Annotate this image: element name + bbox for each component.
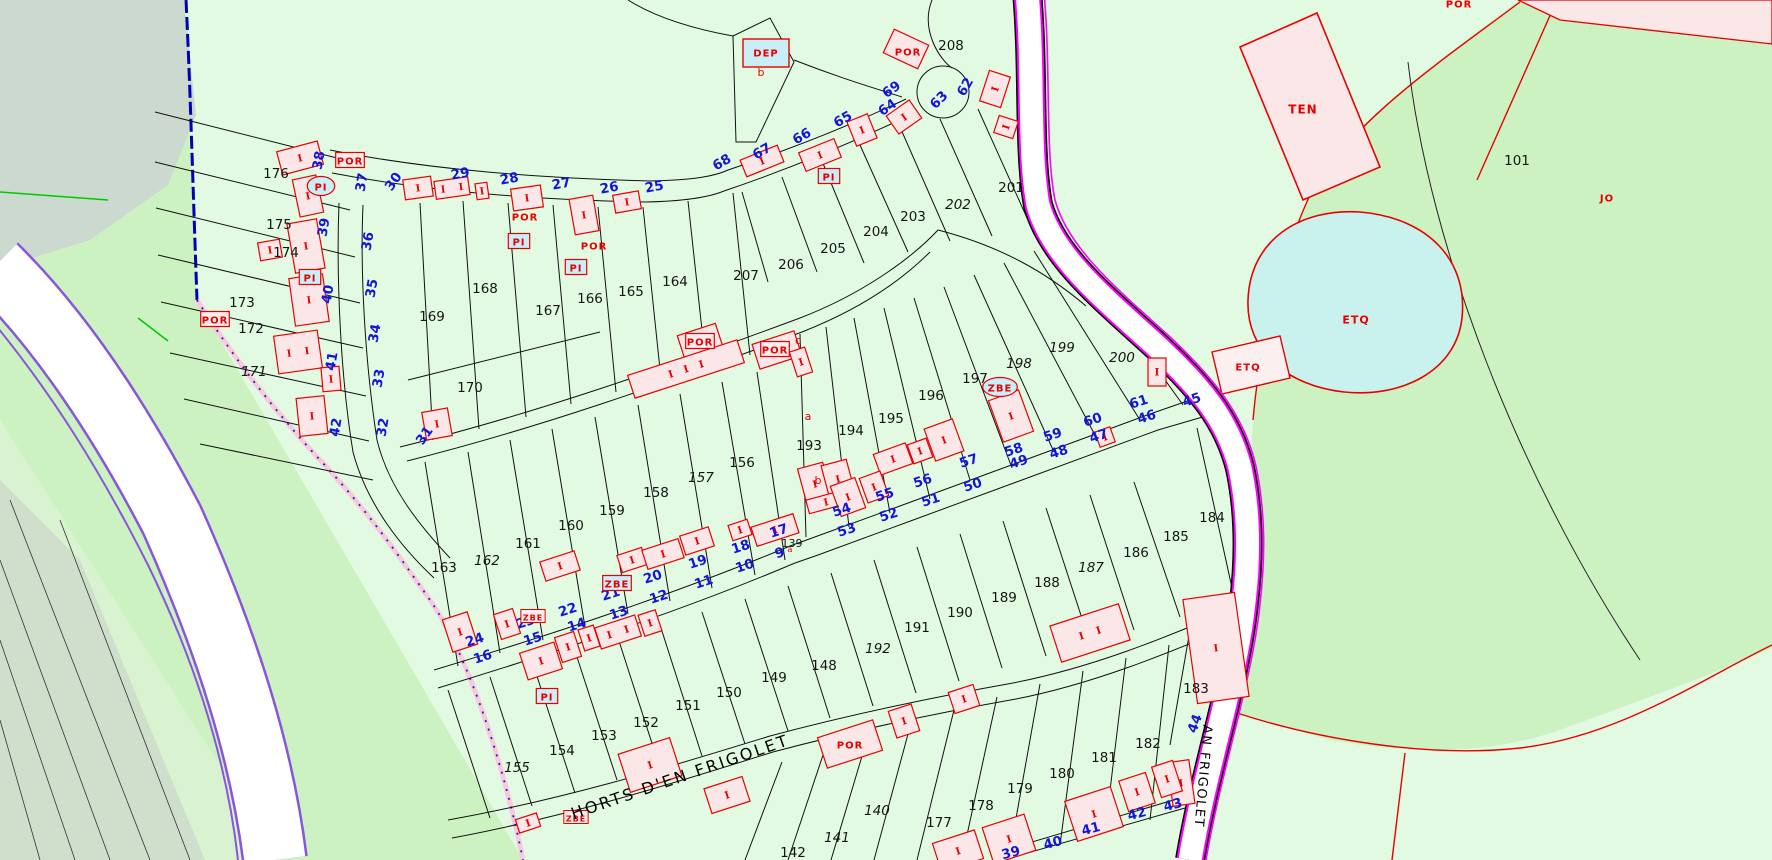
house-number-text: 40: [319, 284, 338, 305]
parcel-number-label: 181: [1091, 750, 1117, 766]
parcel-number-label: 149: [761, 670, 787, 686]
parcel-number-label: 173: [229, 295, 255, 311]
house-number-label: 41: [323, 351, 342, 372]
parcel-number-label: 195: [878, 411, 904, 427]
house-number-text: 42: [327, 417, 346, 438]
parcel-number-label: 180: [1049, 766, 1075, 782]
cadastral-map[interactable]: IIIIIIIIIIIIIIIIIIIIIIIIIIIIIIIIIIIIIIII…: [0, 0, 1772, 860]
parcel-number-label: 191: [904, 620, 930, 636]
house-number-label: 40: [319, 284, 338, 305]
use-code-por: POR: [581, 242, 608, 253]
code-text: ZBE: [988, 384, 1013, 395]
code-text: PI: [314, 183, 327, 194]
parcel-number-label: 164: [662, 274, 688, 290]
parcel-number-label: 153: [591, 728, 617, 744]
parcel-number-label: 163: [431, 560, 457, 576]
house-number-label: 26: [599, 179, 620, 198]
parcel-number-label: 205: [820, 241, 846, 257]
parcel-number-label: 154: [549, 743, 575, 759]
use-code-zbe: ZBE: [603, 576, 632, 591]
building-letter-label: c: [795, 334, 801, 347]
use-code-por: POR: [336, 153, 365, 168]
building: I: [296, 396, 328, 437]
cadastral-map-stage: IIIIIIIIIIIIIIIIIIIIIIIIIIIIIIIIIIIIIIII…: [0, 0, 1772, 860]
use-code-dep: DEP: [753, 49, 778, 60]
house-number-label: 25: [644, 178, 665, 197]
parcel-number-label: 204: [863, 224, 889, 240]
code-text: POR: [687, 338, 714, 349]
parcel-number-label: 177: [926, 815, 952, 831]
code-text: PI: [512, 238, 525, 249]
use-code-ten: TEN: [1288, 103, 1317, 117]
parcel-number-label: 188: [1034, 575, 1060, 591]
parcel-number-label: 183: [1183, 681, 1209, 697]
use-code-pi: PI: [508, 234, 529, 249]
house-number-text: 36: [359, 231, 378, 252]
house-number-text: 41: [323, 351, 342, 372]
parcel-number-label: 198: [1006, 356, 1032, 372]
code-text: PI: [822, 173, 835, 184]
code-text: POR: [1446, 0, 1473, 11]
use-code-pi: PI: [565, 260, 586, 275]
use-code-pi: PI: [536, 689, 557, 704]
code-text: POR: [837, 741, 864, 752]
parcel-number-label: 166: [577, 291, 603, 307]
code-text: POR: [337, 157, 364, 168]
parcel-number-label: 179: [1007, 781, 1033, 797]
parcel-number-label: 202: [945, 197, 971, 213]
parcel-number-label: 186: [1123, 545, 1149, 561]
house-number-label: 36: [359, 231, 378, 252]
parcel-number-label: 192: [865, 641, 891, 657]
use-code-por: POR: [895, 48, 922, 59]
building: I: [403, 176, 434, 200]
parcel-number-label: 101: [1504, 153, 1530, 169]
parcel-number-label: 171: [241, 364, 267, 380]
parcel-number-label: 140: [864, 803, 890, 819]
code-text: ETQ: [1342, 314, 1369, 327]
code-text: POR: [581, 242, 608, 253]
building-letter-label: a: [805, 410, 812, 423]
building: I: [1148, 358, 1166, 386]
parcel-number-label: 168: [472, 281, 498, 297]
use-code-pi: PI: [818, 169, 839, 184]
parcel-number-label: 172: [238, 321, 264, 337]
house-number-text: 37: [353, 172, 372, 193]
use-code-por: POR: [201, 312, 230, 327]
code-text: POR: [512, 213, 539, 224]
parcel-number-label: 201: [998, 180, 1024, 196]
use-code-pi: PI: [299, 270, 320, 285]
parcel-number-label: 174: [273, 245, 299, 261]
house-number-text: 28: [499, 170, 520, 189]
parcel-number-label: 199: [1049, 340, 1075, 356]
house-number-label: 38: [310, 150, 329, 171]
building-outline: [274, 330, 323, 374]
house-number-text: 26: [599, 179, 620, 198]
parcel-number-label: 148: [811, 658, 837, 674]
house-number-label: 42: [327, 417, 346, 438]
use-code-pi: PI: [307, 177, 334, 196]
parcel-number-label: 170: [457, 380, 483, 396]
house-number-label: 34: [366, 323, 385, 344]
use-code-por: POR: [761, 342, 790, 357]
code-text: DEP: [753, 49, 778, 60]
parcel-number-label: 200: [1109, 350, 1135, 366]
house-number-label: 28: [499, 170, 520, 189]
house-number-label: 33: [370, 368, 389, 389]
use-code-jo: JO: [1599, 194, 1614, 205]
parcel-number-label: 175: [266, 217, 292, 233]
use-code-por: POR: [1446, 0, 1473, 11]
parcel-number-label: 207: [733, 268, 759, 284]
code-text: PI: [540, 693, 553, 704]
code-text: PI: [303, 274, 316, 285]
use-code-etq: ETQ: [1235, 363, 1260, 374]
parcel-number-label: 182: [1135, 736, 1161, 752]
building: II: [274, 330, 323, 374]
house-number-label: 37: [353, 172, 372, 193]
parcel-number-label: 141: [824, 830, 850, 846]
house-number-label: 35: [363, 278, 382, 299]
parcel-number-label: 193: [796, 438, 822, 454]
building: I: [511, 185, 544, 211]
parcel-number-label: 184: [1199, 510, 1225, 526]
building-letter-label: b: [815, 474, 822, 487]
code-text: PI: [569, 264, 582, 275]
code-text: JO: [1599, 194, 1614, 205]
parcel-number-label: 194: [838, 423, 864, 439]
code-text: POR: [895, 48, 922, 59]
house-number-text: 34: [366, 323, 385, 344]
house-number-text: 27: [551, 175, 572, 194]
parcel-number-label: 151: [675, 698, 701, 714]
parcel-number-label: 159: [599, 503, 625, 519]
parcel-number-label: 161: [515, 536, 541, 552]
parcel-number-label: 190: [947, 605, 973, 621]
house-number-text: 35: [363, 278, 382, 299]
parcel-number-label: 158: [643, 485, 669, 501]
parcel-number-label: 176: [263, 166, 289, 182]
code-text: ZBE: [523, 614, 543, 623]
parcel-number-label: 157: [688, 470, 714, 486]
parcel-number-label: 203: [900, 209, 926, 225]
house-number-text: 29: [450, 165, 471, 184]
parcel-number-label: 167: [535, 303, 561, 319]
parcel-number-label: 185: [1163, 529, 1189, 545]
house-number-label: 39: [315, 217, 334, 238]
house-number-label: 27: [551, 175, 572, 194]
house-number-label: 29: [450, 165, 471, 184]
parcel-number-label: 160: [558, 518, 584, 534]
use-code-zbe: ZBE: [983, 378, 1018, 397]
code-text: ZBE: [605, 580, 630, 591]
building-storeys-mark: I: [1155, 368, 1160, 379]
house-number-text: 38: [310, 150, 329, 171]
house-number-text: 32: [374, 417, 393, 438]
code-text: ETQ: [1235, 363, 1260, 374]
parcel-number-label: 178: [968, 798, 994, 814]
code-text: POR: [762, 346, 789, 357]
parcel-number-label: 187: [1078, 560, 1104, 576]
house-number-text: 39: [315, 217, 334, 238]
parcel-number-label: 206: [778, 257, 804, 273]
parcel-number-label: 162: [474, 553, 500, 569]
use-code-etq: ETQ: [1342, 314, 1369, 327]
use-code-por: POR: [837, 741, 864, 752]
parcel-number-label: 156: [729, 455, 755, 471]
parcel-number-label: 196: [918, 388, 944, 404]
parcel-number-label: 189: [991, 590, 1017, 606]
house-number-text: 25: [644, 178, 665, 197]
code-text: TEN: [1288, 103, 1317, 117]
use-code-por: POR: [512, 213, 539, 224]
parcel-number-label: 142: [780, 845, 806, 860]
parcel-number-label: 155: [504, 760, 530, 776]
parcel-number-label: 169: [419, 309, 445, 325]
parcel-number-label: 208: [938, 38, 964, 54]
parcel-number-label: 150: [716, 685, 742, 701]
code-text: POR: [202, 316, 229, 327]
house-number-label: 32: [374, 417, 393, 438]
parcel-number-label: 165: [618, 284, 644, 300]
use-code-por: POR: [686, 334, 715, 349]
building: I: [475, 182, 489, 200]
parcel-number-label: 152: [633, 715, 659, 731]
building-letter-label: b: [758, 66, 765, 79]
use-code-zbe: ZBE: [521, 610, 545, 623]
house-number-text: 33: [370, 368, 389, 389]
building-letter-label: a: [788, 545, 793, 554]
